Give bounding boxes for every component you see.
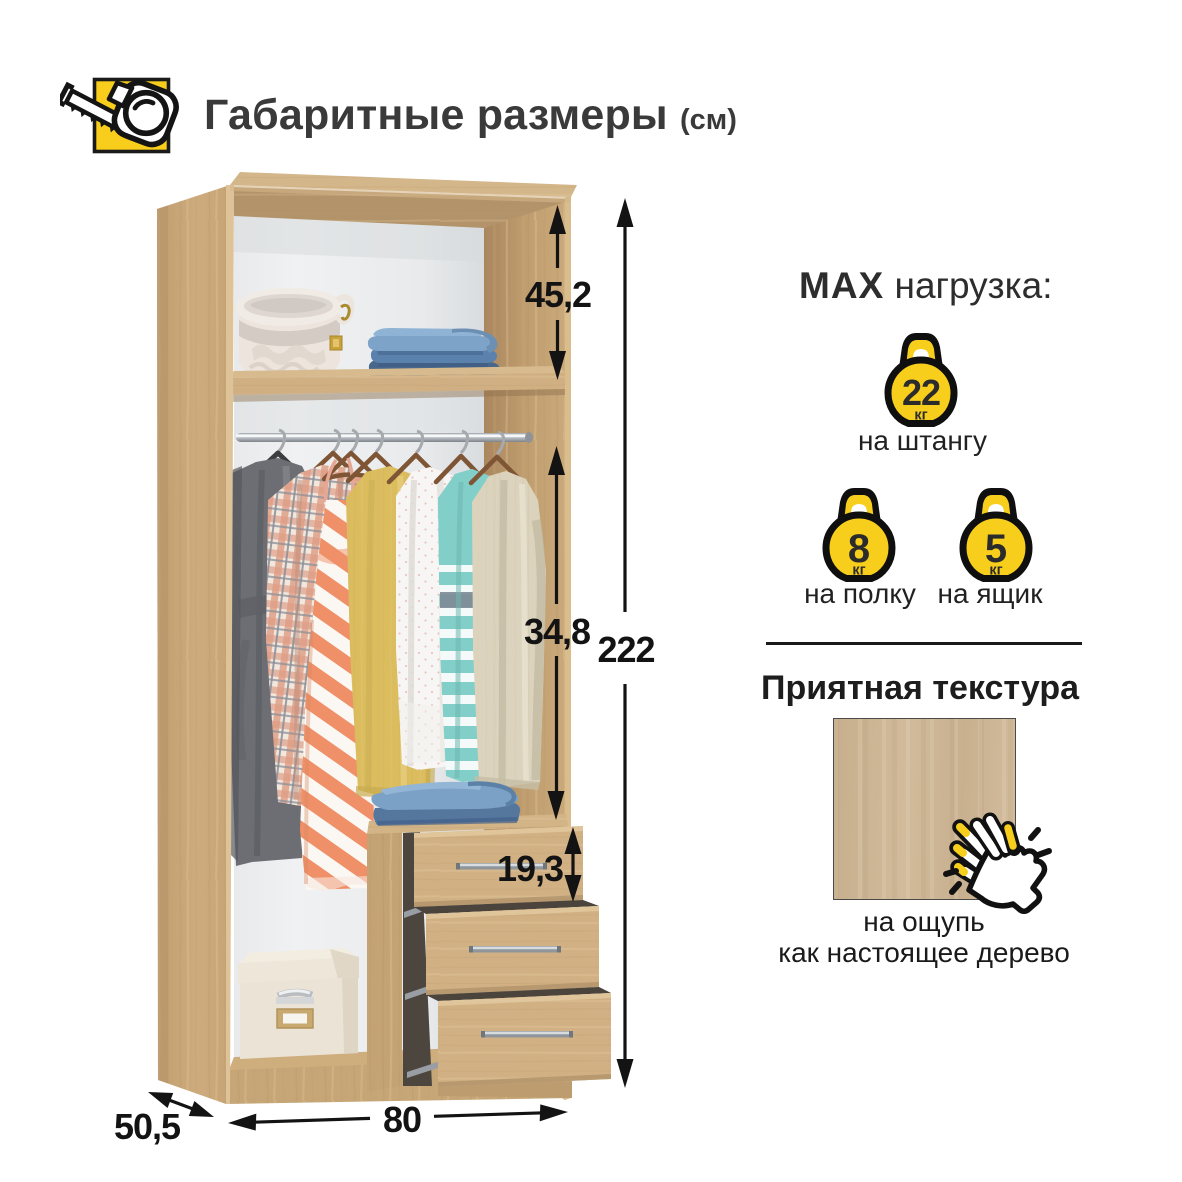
svg-text:50,5: 50,5 xyxy=(114,1106,181,1147)
svg-text:19,3: 19,3 xyxy=(497,848,563,889)
svg-text:кг: кг xyxy=(989,563,1002,579)
svg-text:222: 222 xyxy=(597,629,654,670)
svg-text:80: 80 xyxy=(383,1099,421,1140)
svg-text:кг: кг xyxy=(914,408,927,424)
svg-text:34,8: 34,8 xyxy=(524,611,590,652)
svg-text:кг: кг xyxy=(852,563,865,579)
svg-text:45,2: 45,2 xyxy=(525,274,591,315)
